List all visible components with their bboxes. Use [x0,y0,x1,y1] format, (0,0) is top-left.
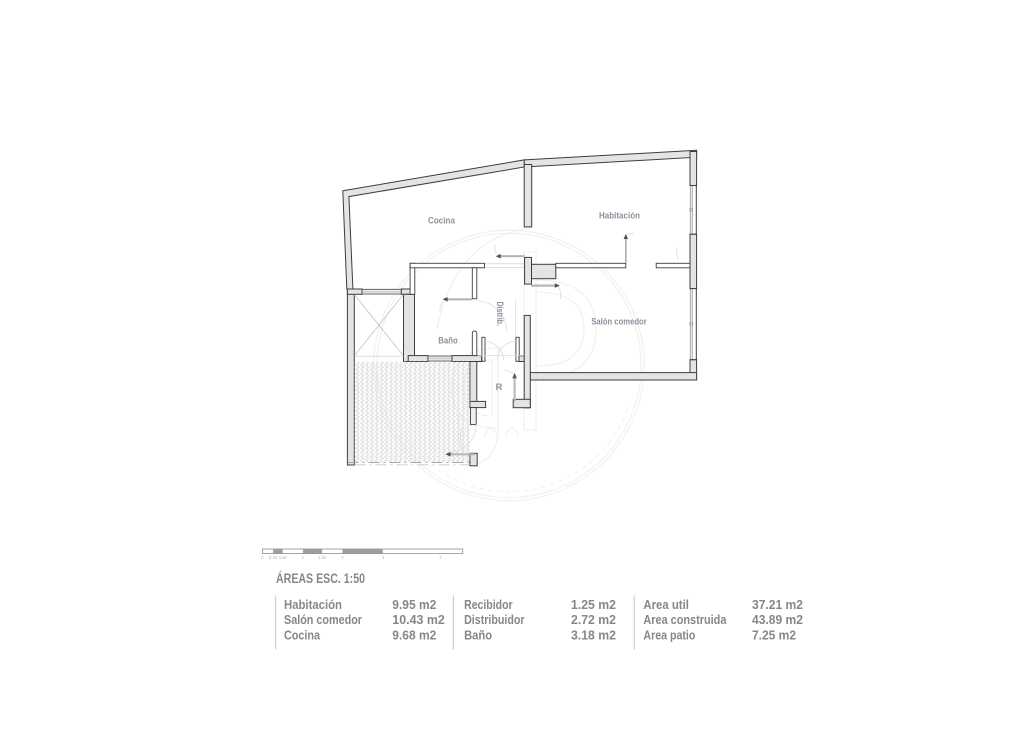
svg-text:0.25: 0.25 [269,555,278,560]
svg-text:Distrib.: Distrib. [495,302,505,327]
svg-text:0.50: 0.50 [279,555,288,560]
svg-text:R: R [496,382,503,392]
svg-text:Salón comedor: Salón comedor [284,612,362,627]
svg-text:Cocina: Cocina [284,627,321,642]
svg-text:Baño: Baño [438,336,458,346]
svg-text:Area patio: Area patio [643,627,695,642]
svg-text:1: 1 [302,555,305,560]
svg-text:2: 2 [341,555,344,560]
svg-text:Salón comedor: Salón comedor [591,316,647,326]
svg-text:Baño: Baño [464,627,492,642]
svg-text:4: 4 [439,555,442,560]
svg-text:0: 0 [261,555,264,560]
svg-text:1.25 m2: 1.25 m2 [571,597,616,612]
svg-text:ÁREAS ESC. 1:50: ÁREAS ESC. 1:50 [276,571,365,586]
svg-text:3: 3 [382,555,385,560]
svg-text:43.89 m2: 43.89 m2 [752,612,803,627]
svg-text:1.50: 1.50 [318,555,327,560]
svg-text:10.43 m2: 10.43 m2 [392,612,445,627]
svg-text:Distribuidor: Distribuidor [464,612,524,627]
svg-text:Cocina: Cocina [428,216,456,226]
svg-text:9.95 m2: 9.95 m2 [392,597,436,612]
svg-text:Recibidor: Recibidor [464,597,512,612]
svg-text:3.18 m2: 3.18 m2 [571,627,616,642]
svg-text:Habitación: Habitación [599,210,640,220]
svg-text:Habitación: Habitación [284,597,342,612]
svg-text:Area construida: Area construida [643,612,727,627]
svg-text:2.72 m2: 2.72 m2 [571,612,616,627]
svg-text:9.68 m2: 9.68 m2 [392,627,436,642]
svg-text:37.21 m2: 37.21 m2 [752,597,803,612]
svg-text:7.25 m2: 7.25 m2 [752,627,796,642]
svg-text:Area util: Area util [643,597,689,612]
